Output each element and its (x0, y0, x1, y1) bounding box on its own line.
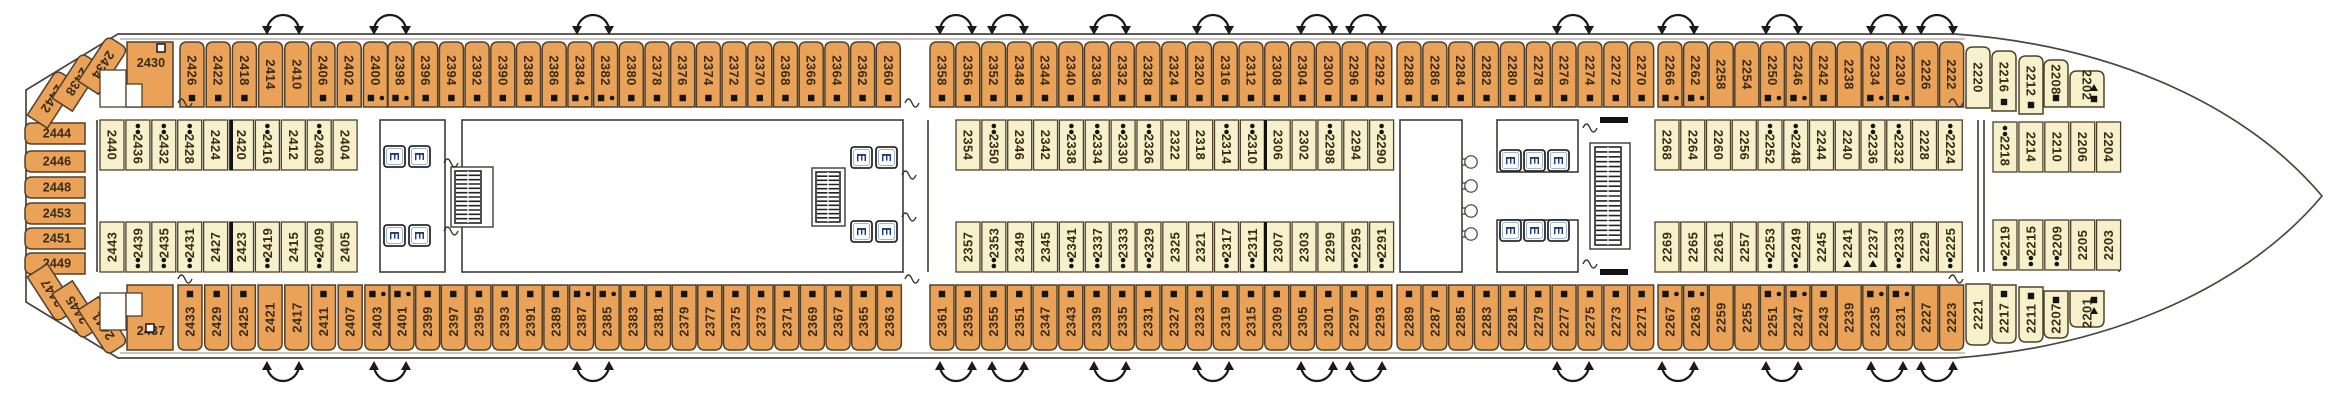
cabin-2448[interactable]: 2448 (25, 177, 85, 198)
cabin-2260[interactable]: 2260 (1707, 120, 1731, 170)
cabin-2427[interactable]: 2427 (204, 222, 228, 272)
cabin-2449[interactable]: 2449 (25, 253, 85, 274)
cabin-2330[interactable]: 2330 (1111, 120, 1135, 170)
cabin-number: 2293 (1372, 306, 1387, 337)
cabin-number: 2409 (312, 228, 327, 259)
cabin-2259[interactable]: 2259 (1709, 285, 1733, 350)
cabin-2350[interactable]: 2350 (982, 120, 1006, 170)
cabin-2398[interactable]: 2398 (388, 42, 412, 107)
cabin-2373[interactable]: 2373 (749, 285, 773, 350)
cabin-2305[interactable]: 2305 (1291, 285, 1315, 350)
cabin-2253[interactable]: 2253 (1758, 222, 1782, 272)
cabin-2210[interactable]: 2210 (2045, 122, 2069, 172)
cabin-2359[interactable]: 2359 (956, 285, 980, 350)
cabin-number: 2303 (1297, 232, 1312, 263)
cabin-2383[interactable]: 2383 (621, 285, 645, 350)
cabin-number: 2212 (2024, 66, 2039, 97)
cabin-number: 2283 (1479, 306, 1494, 337)
cabin-2285[interactable]: 2285 (1449, 285, 1473, 350)
cabin-2312[interactable]: 2312 (1239, 42, 1263, 107)
cabin-2417[interactable]: 2417 (285, 285, 309, 350)
cabin-2261[interactable]: 2261 (1707, 222, 1731, 272)
square-mark-icon (732, 291, 738, 297)
cabin-2241[interactable]: 2241 (1835, 222, 1859, 272)
cabin-2224[interactable]: 2224 (1938, 120, 1962, 170)
cabin-number: 2418 (237, 55, 252, 86)
cabin-2409[interactable]: 2409 (307, 222, 331, 272)
cabin-number: 2339 (1089, 306, 1104, 337)
cabin-2220[interactable]: 2220 (1966, 47, 1990, 108)
cabin-2354[interactable]: 2354 (956, 120, 980, 170)
cabin-2380[interactable]: 2380 (619, 42, 643, 107)
cabin-2303[interactable]: 2303 (1292, 222, 1316, 272)
cabin-2294[interactable]: 2294 (1344, 120, 1368, 170)
cabin-2211[interactable]: 2211 (2019, 287, 2043, 342)
cabin-2297[interactable]: 2297 (1342, 285, 1366, 350)
cabin-number: 2245 (1814, 232, 1829, 263)
cabin-2415[interactable]: 2415 (281, 222, 305, 272)
cabin-2364[interactable]: 2364 (825, 42, 849, 107)
cabin-2376[interactable]: 2376 (671, 42, 695, 107)
cabin-2233[interactable]: 2233 (1887, 222, 1911, 272)
cabin-number: 2290 (1374, 134, 1389, 165)
cabin-2425[interactable]: 2425 (231, 285, 255, 350)
cabin-2239[interactable]: 2239 (1837, 285, 1861, 350)
cabin-2276[interactable]: 2276 (1552, 42, 1576, 107)
cabin-2254[interactable]: 2254 (1735, 42, 1759, 107)
cabin-2420[interactable]: 2420 (230, 120, 254, 170)
cabin-2347[interactable]: 2347 (1033, 285, 1057, 350)
cabin-2237[interactable]: 2237 (1861, 222, 1885, 272)
cabin-2251[interactable]: 2251 (1760, 285, 1784, 350)
cabin-number: 2388 (521, 55, 536, 86)
cabin-2319[interactable]: 2319 (1213, 285, 1237, 350)
cabin-2302[interactable]: 2302 (1292, 120, 1316, 170)
cabin-2306[interactable]: 2306 (1266, 120, 1290, 170)
cabin-2204[interactable]: 2204 (2097, 122, 2121, 172)
cabin-2443[interactable]: 2443 (100, 222, 124, 272)
cabin-2206[interactable]: 2206 (2071, 122, 2095, 172)
cabin-2323[interactable]: 2323 (1188, 285, 1212, 350)
cabin-2426[interactable]: 2426 (180, 42, 204, 107)
cabin-2382[interactable]: 2382 (594, 42, 618, 107)
cabin-2326[interactable]: 2326 (1137, 120, 1161, 170)
cabin-2439[interactable]: 2439 (126, 222, 150, 272)
cabin-2269[interactable]: 2269 (1655, 222, 1679, 272)
cabin-2394[interactable]: 2394 (439, 42, 463, 107)
cabin-2381[interactable]: 2381 (647, 285, 671, 350)
cabin-2214[interactable]: 2214 (2019, 122, 2043, 172)
cabin-2244[interactable]: 2244 (1810, 120, 1834, 170)
cabin-number: 2421 (263, 302, 278, 333)
square-mark-icon (1638, 291, 1644, 297)
cabin-2365[interactable]: 2365 (852, 285, 876, 350)
cabin-2203[interactable]: 2203 (2097, 220, 2121, 270)
square-mark-icon (320, 291, 326, 297)
cabin-2243[interactable]: 2243 (1812, 285, 1836, 350)
cabin-2331[interactable]: 2331 (1136, 285, 1160, 350)
cabin-2421[interactable]: 2421 (258, 285, 282, 350)
cabin-2379[interactable]: 2379 (672, 285, 696, 350)
cabin-2396[interactable]: 2396 (414, 42, 438, 107)
cabin-2267[interactable]: 2267 (1658, 285, 1682, 350)
cabin-2436[interactable]: 2436 (126, 120, 150, 170)
cabin-2416[interactable]: 2416 (255, 120, 279, 170)
cabin-2405[interactable]: 2405 (333, 222, 357, 272)
cabin-2277[interactable]: 2277 (1552, 285, 1576, 350)
cabin-number: 2443 (105, 232, 120, 263)
cabin-2407[interactable]: 2407 (338, 285, 362, 350)
cabin-2228[interactable]: 2228 (1913, 120, 1937, 170)
cabin-2345[interactable]: 2345 (1034, 222, 1058, 272)
square-mark-icon (1820, 95, 1826, 101)
cabin-2351[interactable]: 2351 (1007, 285, 1031, 350)
cabin-2300[interactable]: 2300 (1316, 42, 1340, 107)
cabin-2311[interactable]: 2311 (1240, 222, 1264, 272)
cabin-number: 2374 (701, 55, 716, 86)
cabin-2298[interactable]: 2298 (1318, 120, 1342, 170)
cabin-2266[interactable]: 2266 (1658, 42, 1682, 107)
cabin-2321[interactable]: 2321 (1189, 222, 1213, 272)
cabin-2403[interactable]: 2403 (365, 285, 389, 350)
cabin-2223[interactable]: 2223 (1940, 285, 1964, 350)
cabin-2265[interactable]: 2265 (1681, 222, 1705, 272)
cabin-2410[interactable]: 2410 (285, 42, 309, 107)
cabin-2333[interactable]: 2333 (1111, 222, 1135, 272)
cabin-2314[interactable]: 2314 (1215, 120, 1239, 170)
dot-mark-icon (162, 264, 167, 269)
cabin-2293[interactable]: 2293 (1368, 285, 1392, 350)
square-mark-icon (551, 95, 557, 101)
cabin-2286[interactable]: 2286 (1423, 42, 1447, 107)
cabin-2202[interactable]: 2202 (2070, 70, 2104, 107)
cabin-2368[interactable]: 2368 (774, 42, 798, 107)
cabin-number: 2267 (1663, 306, 1678, 337)
cabin-2388[interactable]: 2388 (517, 42, 541, 107)
cabin-2247[interactable]: 2247 (1786, 285, 1810, 350)
cabin-2242[interactable]: 2242 (1812, 42, 1836, 107)
cabin-2263[interactable]: 2263 (1684, 285, 1708, 350)
cabin-2290[interactable]: 2290 (1370, 120, 1394, 170)
lifeboat-davit-icon (369, 361, 411, 381)
cabin-2258[interactable]: 2258 (1709, 42, 1733, 107)
cabin-2289[interactable]: 2289 (1397, 285, 1421, 350)
cabin-2440[interactable]: 2440 (100, 120, 124, 170)
cabin-2346[interactable]: 2346 (1008, 120, 1032, 170)
cabin-2307[interactable]: 2307 (1266, 222, 1290, 272)
cabin-2273[interactable]: 2273 (1604, 285, 1628, 350)
cabin-2446[interactable]: 2446 (25, 151, 85, 172)
dot-mark-icon (992, 130, 997, 135)
elevator-icon: E (1500, 220, 1521, 241)
cabin-2316[interactable]: 2316 (1213, 42, 1237, 107)
cabin-2284[interactable]: 2284 (1449, 42, 1473, 107)
cabin-2225[interactable]: 2225 (1938, 222, 1962, 272)
cabin-2395[interactable]: 2395 (467, 285, 491, 350)
cabin-2340[interactable]: 2340 (1059, 42, 1083, 107)
cabin-2343[interactable]: 2343 (1059, 285, 1083, 350)
cabin-2230[interactable]: 2230 (1888, 42, 1912, 107)
cabin-2423[interactable]: 2423 (230, 222, 254, 272)
dot-mark-icon (1095, 124, 1100, 129)
cabin-2344[interactable]: 2344 (1033, 42, 1057, 107)
cabin-2431[interactable]: 2431 (178, 222, 202, 272)
cabin-2453[interactable]: 2453 (25, 203, 85, 224)
square-mark-icon (2091, 297, 2097, 303)
cabin-2250[interactable]: 2250 (1760, 42, 1784, 107)
cabin-2207[interactable]: 2207 (2044, 291, 2068, 338)
cabin-number: 2381 (651, 306, 666, 337)
cabin-2222[interactable]: 2222 (1940, 42, 1964, 107)
cabin-2318[interactable]: 2318 (1189, 120, 1213, 170)
cabin-2375[interactable]: 2375 (723, 285, 747, 350)
cabin-2246[interactable]: 2246 (1786, 42, 1810, 107)
cabin-2271[interactable]: 2271 (1630, 285, 1654, 350)
cabin-2315[interactable]: 2315 (1239, 285, 1263, 350)
cabin-2310[interactable]: 2310 (1240, 120, 1264, 170)
cabin-2339[interactable]: 2339 (1085, 285, 1109, 350)
cabin-2392[interactable]: 2392 (465, 42, 489, 107)
cabin-number: 2227 (1919, 302, 1934, 333)
cabin-2399[interactable]: 2399 (416, 285, 440, 350)
cabin-number: 2357 (961, 232, 976, 263)
cabin-2288[interactable]: 2288 (1397, 42, 1421, 107)
cabin-2322[interactable]: 2322 (1163, 120, 1187, 170)
cabin-2205[interactable]: 2205 (2071, 220, 2095, 270)
cabin-2226[interactable]: 2226 (1914, 42, 1938, 107)
cabin-2268[interactable]: 2268 (1655, 120, 1679, 170)
cabin-2215[interactable]: 2215 (2019, 220, 2043, 270)
cabin-2292[interactable]: 2292 (1368, 42, 1392, 107)
cabin-2393[interactable]: 2393 (493, 285, 517, 350)
cabin-2335[interactable]: 2335 (1110, 285, 1134, 350)
cabin-2352[interactable]: 2352 (982, 42, 1006, 107)
cabin-2414[interactable]: 2414 (259, 42, 283, 107)
cabin-2357[interactable]: 2357 (956, 222, 980, 272)
cabin-2402[interactable]: 2402 (337, 42, 361, 107)
cabin-2256[interactable]: 2256 (1732, 120, 1756, 170)
cabin-2387[interactable]: 2387 (570, 285, 594, 350)
cabin-2363[interactable]: 2363 (877, 285, 901, 350)
cabin-2374[interactable]: 2374 (696, 42, 720, 107)
cabin-2356[interactable]: 2356 (956, 42, 980, 107)
cabin-2262[interactable]: 2262 (1684, 42, 1708, 107)
cabin-2384[interactable]: 2384 (568, 42, 592, 107)
cabin-2336[interactable]: 2336 (1085, 42, 1109, 107)
cabin-2272[interactable]: 2272 (1604, 42, 1628, 107)
cabin-2219[interactable]: 2219 (1993, 220, 2017, 270)
cabin-2378[interactable]: 2378 (645, 42, 669, 107)
cabin-2235[interactable]: 2235 (1863, 285, 1887, 350)
elevator-icon: E (409, 146, 430, 167)
cabin-number: 2431 (182, 228, 197, 259)
cabin-2295[interactable]: 2295 (1344, 222, 1368, 272)
cabin-2320[interactable]: 2320 (1188, 42, 1212, 107)
cabin-2208[interactable]: 2208 (2044, 60, 2068, 107)
cabin-2232[interactable]: 2232 (1887, 120, 1911, 170)
cabin-2397[interactable]: 2397 (441, 285, 465, 350)
cabin-2411[interactable]: 2411 (312, 285, 336, 350)
square-mark-icon (1299, 95, 1305, 101)
dot-mark-icon (187, 264, 192, 269)
cabin-2337[interactable]: 2337 (1085, 222, 1109, 272)
cabin-2209[interactable]: 2209 (2045, 220, 2069, 270)
cabin-2264[interactable]: 2264 (1681, 120, 1705, 170)
cabin-2280[interactable]: 2280 (1500, 42, 1524, 107)
cabin-number: 2370 (752, 55, 767, 86)
cabin-2419[interactable]: 2419 (255, 222, 279, 272)
cabin-2386[interactable]: 2386 (542, 42, 566, 107)
cabin-2212[interactable]: 2212 (2019, 56, 2043, 114)
cabin-2406[interactable]: 2406 (311, 42, 335, 107)
cabin-2248[interactable]: 2248 (1784, 120, 1808, 170)
dot-mark-icon (1674, 96, 1679, 101)
cabin-2255[interactable]: 2255 (1735, 285, 1759, 350)
cabin-number: 2221 (1971, 299, 1986, 330)
dot-mark-icon (1224, 124, 1229, 129)
cabin-2299[interactable]: 2299 (1318, 222, 1342, 272)
cabin-2369[interactable]: 2369 (800, 285, 824, 350)
cabin-2355[interactable]: 2355 (982, 285, 1006, 350)
cabin-2238[interactable]: 2238 (1837, 42, 1861, 107)
cabin-2282[interactable]: 2282 (1475, 42, 1499, 107)
cabin-2217[interactable]: 2217 (1992, 285, 2016, 343)
cabin-2341[interactable]: 2341 (1059, 222, 1083, 272)
cabin-2400[interactable]: 2400 (363, 42, 387, 107)
cabin-2372[interactable]: 2372 (722, 42, 746, 107)
cabin-2249[interactable]: 2249 (1784, 222, 1808, 272)
cabin-2275[interactable]: 2275 (1578, 285, 1602, 350)
cabin-2218[interactable]: 2218 (1993, 122, 2017, 172)
cabin-number: 2348 (1012, 55, 1027, 86)
cabin-2338[interactable]: 2338 (1059, 120, 1083, 170)
square-mark-icon (939, 95, 945, 101)
dot-mark-icon (1905, 96, 1910, 101)
cabin-2229[interactable]: 2229 (1913, 222, 1937, 272)
cabin-2296[interactable]: 2296 (1342, 42, 1366, 107)
cabin-2360[interactable]: 2360 (876, 42, 900, 107)
cabin-2390[interactable]: 2390 (491, 42, 515, 107)
cabin-2377[interactable]: 2377 (698, 285, 722, 350)
cabin-2257[interactable]: 2257 (1732, 222, 1756, 272)
cabin-2342[interactable]: 2342 (1034, 120, 1058, 170)
dot-mark-icon (1871, 124, 1876, 129)
cabin-2362[interactable]: 2362 (851, 42, 875, 107)
cabin-2301[interactable]: 2301 (1316, 285, 1340, 350)
cabin-2349[interactable]: 2349 (1008, 222, 1032, 272)
cabin-number: 2223 (1944, 302, 1959, 333)
square-mark-icon (628, 95, 634, 101)
cabin-2201[interactable]: 2201 (2070, 291, 2104, 328)
cabin-2422[interactable]: 2422 (206, 42, 230, 107)
cabin-2329[interactable]: 2329 (1137, 222, 1161, 272)
cabin-2274[interactable]: 2274 (1578, 42, 1602, 107)
cabin-2270[interactable]: 2270 (1630, 42, 1654, 107)
cabin-2325[interactable]: 2325 (1163, 222, 1187, 272)
cabin-2348[interactable]: 2348 (1007, 42, 1031, 107)
cabin-number: 2365 (856, 306, 871, 337)
cabin-2366[interactable]: 2366 (799, 42, 823, 107)
cabin-2279[interactable]: 2279 (1526, 285, 1550, 350)
cabin-2278[interactable]: 2278 (1526, 42, 1550, 107)
cabin-2367[interactable]: 2367 (826, 285, 850, 350)
cabin-2328[interactable]: 2328 (1136, 42, 1160, 107)
cabin-number: 2432 (156, 134, 171, 165)
cabin-2432[interactable]: 2432 (152, 120, 176, 170)
cabin-2428[interactable]: 2428 (178, 120, 202, 170)
cabin-2252[interactable]: 2252 (1758, 120, 1782, 170)
cabin-2412[interactable]: 2412 (281, 120, 305, 170)
cabin-2245[interactable]: 2245 (1810, 222, 1834, 272)
dot-mark-icon (1793, 124, 1798, 129)
cabin-2404[interactable]: 2404 (333, 120, 357, 170)
cabin-2385[interactable]: 2385 (595, 285, 619, 350)
cabin-2240[interactable]: 2240 (1835, 120, 1859, 170)
cabin-2234[interactable]: 2234 (1863, 42, 1887, 107)
cabin-2353[interactable]: 2353 (982, 222, 1006, 272)
cabin-2327[interactable]: 2327 (1162, 285, 1186, 350)
cabin-2324[interactable]: 2324 (1162, 42, 1186, 107)
cabin-2451[interactable]: 2451 (25, 228, 85, 249)
cabin-number: 2224 (1943, 134, 1958, 165)
cabin-2236[interactable]: 2236 (1861, 120, 1885, 170)
cabin-2309[interactable]: 2309 (1265, 285, 1289, 350)
cabin-2424[interactable]: 2424 (204, 120, 228, 170)
cabin-number: 2318 (1193, 130, 1208, 161)
cabin-number: 2243 (1816, 306, 1831, 337)
cabin-2308[interactable]: 2308 (1265, 42, 1289, 107)
cabin-2408[interactable]: 2408 (307, 120, 331, 170)
cabin-2304[interactable]: 2304 (1291, 42, 1315, 107)
cabin-2287[interactable]: 2287 (1423, 285, 1447, 350)
cabin-2231[interactable]: 2231 (1888, 285, 1912, 350)
elevator-icon: E (384, 146, 405, 167)
dot-mark-icon (2029, 262, 2034, 267)
cabin-2433[interactable]: 2433 (178, 285, 202, 350)
cabin-2283[interactable]: 2283 (1475, 285, 1499, 350)
cabin-2317[interactable]: 2317 (1215, 222, 1239, 272)
fire-door-bar (230, 120, 233, 170)
dot-mark-icon (187, 130, 192, 135)
cabin-2401[interactable]: 2401 (390, 285, 414, 350)
cabin-number: 2425 (236, 306, 251, 337)
cabin-2371[interactable]: 2371 (775, 285, 799, 350)
dot-mark-icon (404, 96, 409, 101)
cabin-2370[interactable]: 2370 (748, 42, 772, 107)
cabin-number: 2340 (1063, 55, 1078, 86)
cabin-2444[interactable]: 2444 (25, 123, 85, 144)
cabin-2361[interactable]: 2361 (930, 285, 954, 350)
cabin-number: 2358 (935, 55, 950, 86)
cabin-number: 2277 (1557, 306, 1572, 337)
cabin-2435[interactable]: 2435 (152, 222, 176, 272)
cabin-2429[interactable]: 2429 (205, 285, 229, 350)
cabin-number: 2244 (1814, 130, 1829, 161)
cabin-number: 2264 (1685, 130, 1700, 161)
cabin-2216[interactable]: 2216 (1992, 51, 2016, 111)
cabin-2221[interactable]: 2221 (1966, 284, 1990, 345)
cabin-2334[interactable]: 2334 (1085, 120, 1109, 170)
cabin-2358[interactable]: 2358 (930, 42, 954, 107)
cabin-2389[interactable]: 2389 (544, 285, 568, 350)
cabin-2291[interactable]: 2291 (1370, 222, 1394, 272)
cabin-2227[interactable]: 2227 (1914, 285, 1938, 350)
cabin-number: 2300 (1321, 55, 1336, 86)
cabin-2332[interactable]: 2332 (1110, 42, 1134, 107)
cabin-2418[interactable]: 2418 (232, 42, 256, 107)
cabin-2281[interactable]: 2281 (1500, 285, 1524, 350)
cabin-2391[interactable]: 2391 (518, 285, 542, 350)
